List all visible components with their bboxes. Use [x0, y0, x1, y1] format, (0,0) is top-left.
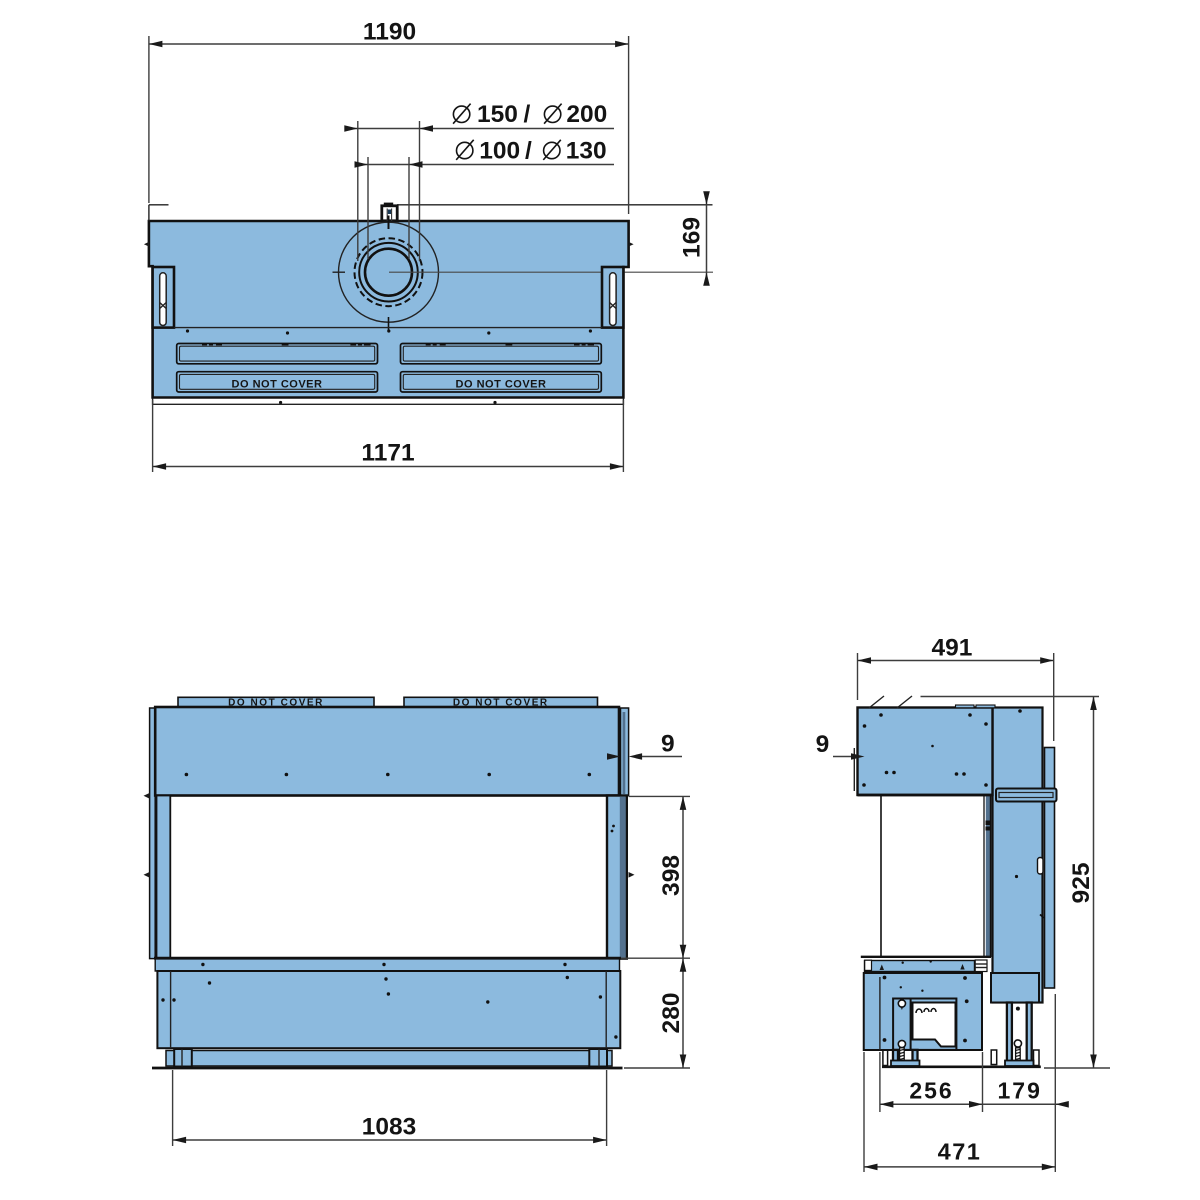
svg-text:100: 100 [479, 138, 520, 165]
svg-text:/: / [525, 138, 532, 165]
svg-text:398: 398 [658, 855, 685, 896]
svg-text:1171: 1171 [361, 440, 414, 467]
svg-text:9: 9 [816, 731, 830, 758]
svg-text:169: 169 [679, 217, 706, 258]
svg-text:491: 491 [932, 634, 973, 661]
svg-text:DO NOT COVER: DO NOT COVER [456, 378, 547, 390]
svg-text:1083: 1083 [362, 1114, 417, 1141]
svg-text:280: 280 [658, 993, 685, 1034]
svg-text:130: 130 [566, 138, 607, 165]
svg-text:1190: 1190 [363, 19, 416, 46]
svg-text:471: 471 [938, 1139, 982, 1165]
svg-text:/: / [524, 101, 531, 128]
svg-text:256: 256 [909, 1078, 953, 1104]
svg-text:150: 150 [477, 101, 518, 128]
svg-text:DO NOT COVER: DO NOT COVER [232, 378, 323, 390]
svg-text:925: 925 [1068, 863, 1095, 904]
svg-text:200: 200 [566, 101, 607, 128]
svg-text:179: 179 [998, 1078, 1042, 1104]
svg-text:9: 9 [661, 731, 675, 758]
